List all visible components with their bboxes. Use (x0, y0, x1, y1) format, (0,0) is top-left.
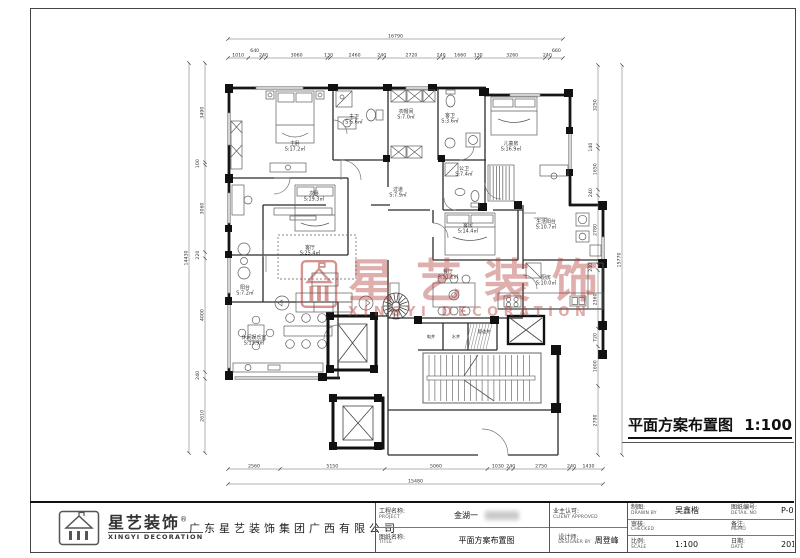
xingyi-logo-icon (58, 510, 100, 546)
room-label: 客厅S:25.4㎡ (300, 244, 321, 256)
room-label: 客卫S:3.6㎡ (441, 112, 459, 124)
living-room-set (274, 208, 373, 312)
dimension-text: 2360 (592, 293, 598, 305)
outer-walls-layer (229, 87, 604, 411)
drawn-by-label: 制图: DRAWN BY (628, 503, 672, 520)
dimension-text: 130 (474, 52, 483, 58)
dimension-text: 3250 (592, 99, 598, 111)
wardrobe-hatch (488, 165, 514, 201)
master-bed (266, 91, 324, 143)
date-value: 2016-07-15 (778, 536, 794, 553)
room-label: 休闲娱乐室S:13.9㎡ (242, 334, 267, 346)
plan-title-text: 平面方案布置图 (628, 416, 733, 434)
elevator-shaft (508, 316, 544, 344)
scale-value: 1:100 (672, 536, 728, 553)
closet-wardrobes (391, 90, 435, 158)
dimension-text: 1030 (492, 463, 504, 469)
dimension-text: 3490 (199, 107, 205, 119)
dimension-text: 15770 (616, 253, 622, 268)
dimension-text: 16790 (388, 33, 403, 39)
dimension-text: 660 (552, 48, 561, 54)
dimension-text: 100 (195, 159, 201, 168)
fields-right-group: 制图: DRAWN BY 吴鑫楷 图纸编号: DETAIL NO P-03 审核… (627, 503, 794, 553)
project-value: 金湖一 (424, 503, 549, 528)
floor-plan-area: 主卧S:17.2㎡主卫S:5.6㎡衣帽间S:7.0㎡客卫S:3.6㎡儿童房S:1… (178, 25, 648, 495)
dimension-text: 5060 (430, 463, 442, 469)
dimension-text: 3060 (199, 203, 205, 215)
elevator-shaft (333, 398, 383, 448)
dimension-text: 1010 (232, 52, 244, 58)
dimension-text: 240 (588, 263, 594, 272)
dimension-text: 2460 (349, 52, 361, 58)
dimension-text: 4000 (199, 309, 205, 321)
title-label: 图纸名称: TITLE (376, 528, 424, 553)
dimension-text: 640 (250, 48, 259, 54)
columns-layer (225, 84, 607, 450)
checked-value (672, 520, 728, 537)
master-wardrobe (231, 121, 242, 169)
floor-plan-canvas: 主卧S:17.2㎡主卫S:5.6㎡衣帽间S:7.0㎡客卫S:3.6㎡儿童房S:1… (178, 25, 648, 495)
shaft-label: 管道井 (478, 328, 491, 335)
furniture-layer (231, 90, 603, 372)
room-label: 过道S:7.9㎡ (389, 186, 407, 198)
dimension-text: 240 (195, 371, 201, 380)
dimension-text: 14430 (183, 251, 189, 266)
dimension-text: 5150 (326, 463, 338, 469)
doors-layer (263, 120, 547, 455)
dimension-text: 2780 (592, 224, 598, 236)
project-label: 工程名称: PROJECT (376, 503, 424, 528)
dimension-text: 2560 (248, 463, 260, 469)
company-logo: 星艺装饰® XINGYI DECORATION (30, 503, 213, 553)
room-label: 生活阳台S:10.7㎡ (536, 218, 557, 230)
dimension-text: 1600 (592, 360, 598, 372)
designer-field: 设计师: DESIGNER BY 周登峰 (550, 528, 627, 553)
company-name: 广东星艺装饰集团广西有限公司 (213, 503, 375, 553)
dimension-text: 1660 (454, 52, 466, 58)
logo-cn-text: 星艺装饰 (108, 513, 180, 532)
dimension-text: 140 (588, 143, 594, 152)
room-label: 客房S:14.4㎡ (458, 222, 479, 234)
balcony-chairs (238, 243, 250, 279)
room-labels-layer: 主卧S:17.2㎡主卫S:5.6㎡衣帽间S:7.0㎡客卫S:3.6㎡儿童房S:1… (236, 108, 556, 346)
date-label: 日期: DATE (728, 536, 778, 553)
memo-value (778, 520, 794, 537)
ceiling-fan-rosette (383, 293, 409, 319)
room-label: 次卧S:19.3㎡ (304, 190, 325, 202)
dimension-text: 15480 (408, 478, 423, 484)
plan-scale-text: 1:100 (744, 416, 792, 434)
dimension-text: 130 (324, 52, 333, 58)
plan-title-underline (622, 442, 794, 443)
title-block: 星艺装饰® XINGYI DECORATION 广东星艺装饰集团广西有限公司 工… (30, 501, 794, 553)
elevator-shaft (328, 316, 376, 370)
detail-no-label: 图纸编号: DETAIL NO (728, 503, 778, 520)
dimension-text: 1650 (592, 163, 598, 175)
dimension-text: 220 (195, 251, 201, 260)
dimension-text: 3060 (291, 52, 303, 58)
room-label: 儿童房S:16.9㎡ (501, 140, 522, 152)
title-block-fields: 工程名称: PROJECT 金湖一 图纸名称: TITLE 平面方案布置图 业主… (375, 503, 794, 553)
dimension-text: 1430 (583, 463, 595, 469)
room-label: 餐厅S:11.1㎡ (438, 268, 459, 280)
shaft-label: 水井 (452, 333, 460, 340)
plan-title: 平面方案布置图 1:100 (628, 414, 792, 439)
dimension-text: 2750 (535, 463, 547, 469)
scale-label: 比例: SCALE (628, 536, 672, 553)
room-label: 主卧S:17.2㎡ (285, 140, 306, 152)
designer-value: 周登峰 (595, 535, 619, 546)
detail-no-value: P-03 (778, 503, 794, 520)
redacted-text-blur (485, 511, 519, 520)
fields-mid-group: 业主认可: CLIENT APPROVED 设计师: DESIGNER BY 周… (549, 503, 627, 553)
room-label: 衣帽间S:7.0㎡ (397, 108, 415, 120)
dimension-text: 2790 (592, 415, 598, 427)
dimension-text: 240 (588, 188, 594, 197)
dimension-text: 720 (592, 333, 598, 342)
master-dresser (270, 163, 306, 172)
utility-shaft-hatch (465, 324, 492, 349)
stairs (423, 353, 541, 403)
shaft-label: 电井 (427, 333, 435, 340)
room-label: 阳台S:7.2㎡ (236, 284, 254, 296)
title-value: 平面方案布置图 (424, 528, 549, 553)
fields-left-group: 工程名称: PROJECT 金湖一 图纸名称: TITLE 平面方案布置图 (376, 503, 549, 553)
dimension-text: 2720 (405, 52, 417, 58)
memo-label: 备注: MEMO (728, 520, 778, 537)
client-approved-label: 业主认可: CLIENT APPROVED (550, 503, 627, 528)
room-label: 主卫S:5.6㎡ (345, 113, 363, 125)
dimension-text: 3260 (506, 52, 518, 58)
registered-mark: ® (180, 515, 187, 523)
checked-label: 审核: CHECKED (628, 520, 672, 537)
dimension-text: 2610 (199, 410, 205, 422)
drawn-by-value: 吴鑫楷 (672, 503, 728, 520)
